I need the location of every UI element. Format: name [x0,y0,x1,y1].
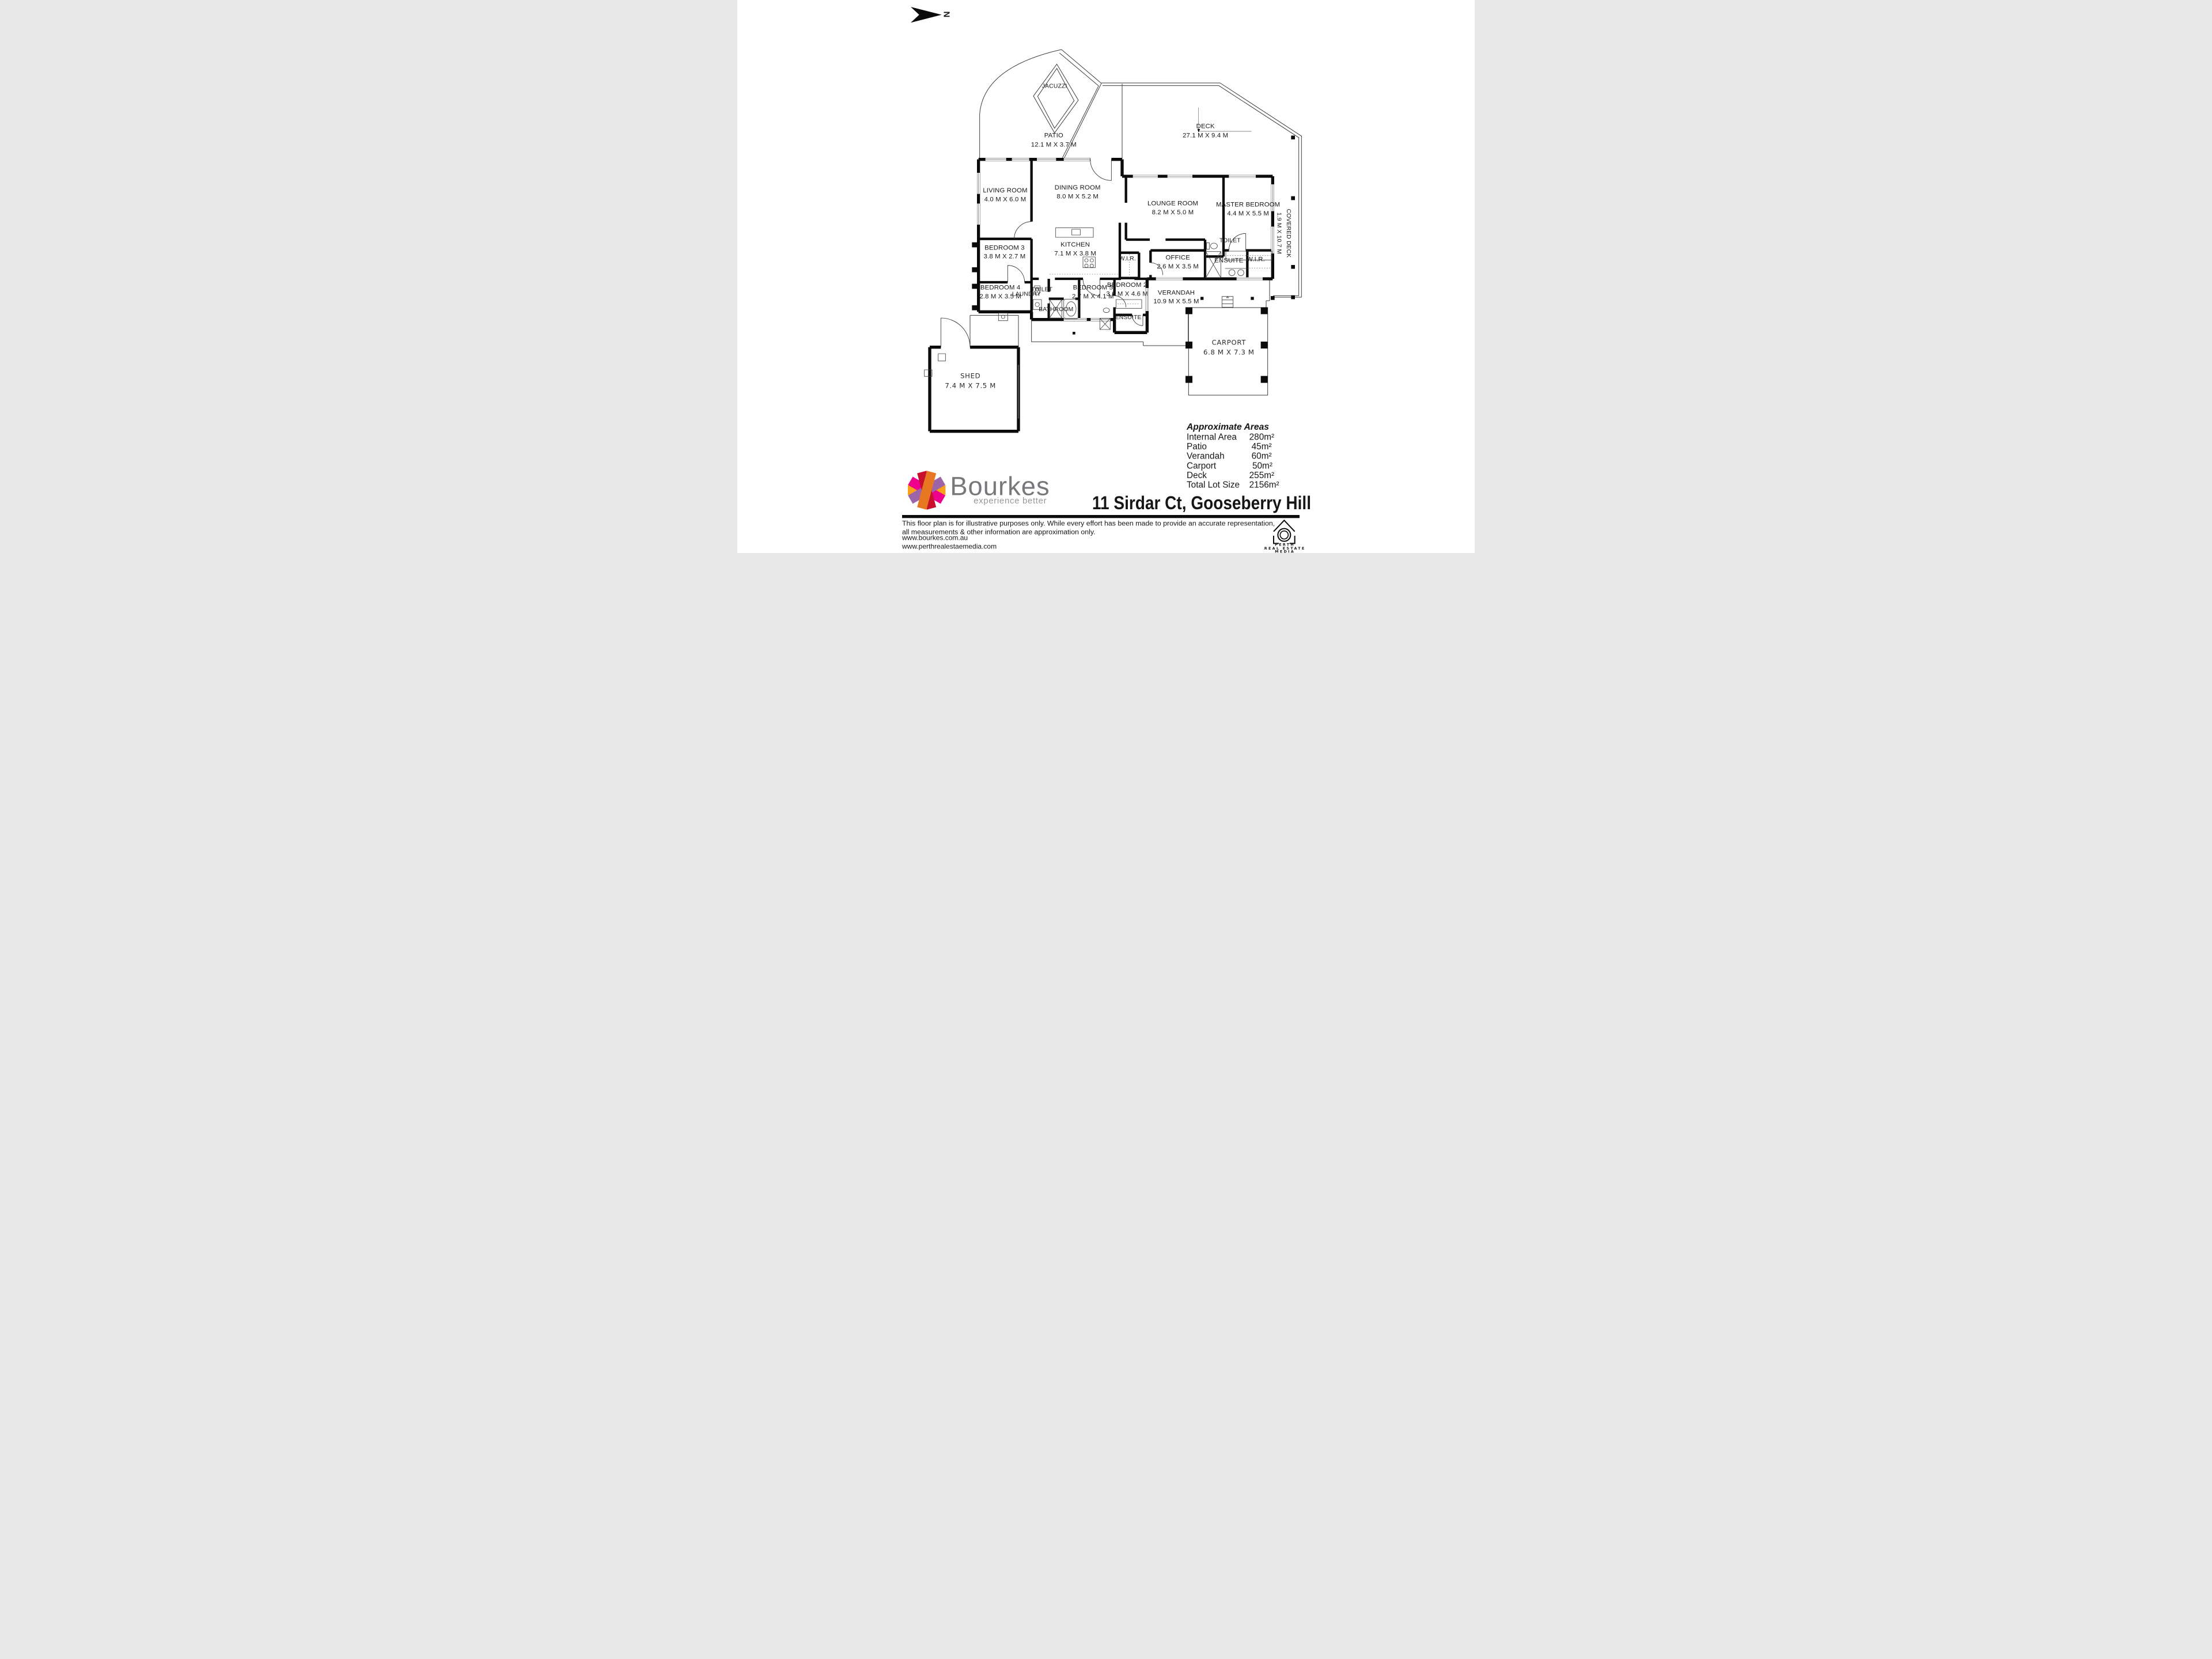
bourkes-star-icon [908,471,945,509]
brand-tagline: experience better [974,496,1047,506]
shed-annex-outline [970,315,1018,347]
property-address: 11 Sirdar Ct, Gooseberry Hill [1092,493,1311,513]
room-label-toilet1: TOILET [1219,238,1241,244]
room-label-bedroom2: BEDROOM 2 [1107,282,1147,289]
room-label-toilet2: TOILET [1031,286,1052,293]
prem-text-line1: PERTH [1275,543,1295,547]
room-dims-kitchen: 7.1 M X 3.8 M [1054,250,1096,257]
room-label-bedroom4: BEDROOM 4 [980,285,1020,291]
room-label-bathroom: BATHROOM [1039,306,1073,313]
cooktop-burner [1085,259,1088,262]
room-dims-living: 4.0 M X 6.0 M [984,196,1027,203]
room-dims-lounge: 8.2 M X 5.0 M [1152,209,1194,216]
room-label-wir2: W.I.R. [1247,256,1265,263]
room-label-wir1: W.I.R. [1119,256,1136,262]
bed4-niche-bowl [1001,315,1005,319]
room-label-office: OFFICE [1165,255,1190,262]
room-dims-shed: 7.4 M X 7.5 M [945,381,996,389]
areas-row-label: Deck [1187,471,1207,480]
areas-row-value: 255m² [1249,471,1274,480]
basin [1229,270,1235,276]
areas-row-value: 45m² [1252,442,1272,452]
room-label-covered-deck: COVERED DECK [1285,209,1291,258]
room-label-master: MASTER BEDROOM [1216,202,1280,209]
room-label-ensuite-master: ENSUITE [1214,257,1244,264]
basin [1238,270,1244,276]
link-bourkes[interactable]: www.bourkes.com.au [902,533,968,541]
room-dims-deck: 27.1 M X 9.4 M [1183,132,1228,139]
footer-rule [902,515,1300,518]
areas-row-label: Verandah [1187,452,1225,461]
room-dims-patio: 12.1 M X 3.7 M [1031,141,1077,148]
north-arrow: N [911,7,950,22]
room-dims-covered-deck: 1.9 M X 10.7 M [1275,213,1282,254]
room-dims-bedroom3: 3.8 M X 2.7 M [984,253,1026,260]
bourkes-logo: Bourkes experience better [908,471,1050,509]
room-label-shed: SHED [960,372,980,380]
areas-row-value: 60m² [1252,452,1272,461]
cooktop-burner [1090,264,1093,267]
room-dims-office: 2.6 M X 3.5 M [1157,263,1199,270]
areas-table: Approximate Areas Internal Area 280m² Pa… [1186,422,1279,490]
room-dims-verandah: 10.9 M X 5.5 M [1153,298,1199,305]
room-dims-bedroom2: 3.6 M X 4.6 M [1106,290,1148,297]
areas-row-label: Patio [1187,442,1207,452]
ensuite2-toilet [1103,308,1109,313]
cooktop-burner [1085,264,1088,267]
areas-row-value: 2156m² [1249,480,1279,490]
north-label: N [941,12,950,18]
room-dims-dining: 8.0 M X 5.2 M [1056,193,1099,200]
floorplan-page: N JACUZZI [737,0,1475,553]
toilet1-bowl [1210,243,1217,249]
areas-row-value: 50m² [1252,461,1272,471]
room-label-verandah: VERANDAH [1158,289,1195,296]
north-arrow-icon [911,7,942,22]
laundry-trough-bowl [1035,302,1039,306]
toilet1-fixture [1207,243,1210,249]
room-label-lounge: LOUNGE ROOM [1147,200,1198,207]
areas-row-label: Total Lot Size [1187,480,1240,490]
areas-row-label: Carport [1187,461,1217,471]
room-dims-master: 4.4 M X 5.5 M [1227,210,1269,217]
room-label-living: LIVING ROOM [983,187,1027,194]
room-label-bedroom3: BEDROOM 3 [984,244,1024,251]
room-label-jacuzzi: JACUZZI [1042,84,1067,90]
areas-title: Approximate Areas [1186,422,1269,432]
cooktop-burner [1090,259,1093,262]
prem-lens-inner-icon [1280,531,1288,539]
prem-house-icon [1274,520,1295,543]
areas-row-value: 280m² [1249,432,1274,442]
room-label-carport: CARPORT [1212,339,1247,347]
areas-row-label: Internal Area [1187,432,1237,442]
bbq [1222,296,1233,307]
room-label-kitchen: KITCHEN [1060,241,1090,248]
link-perthrealestatemedia[interactable]: www.perthrealestaemedia.com [902,543,997,551]
prem-text-line3: MEDIA [1275,550,1295,553]
floorplan-canvas: N JACUZZI [737,0,1475,553]
shed-window-boxes [925,354,946,376]
room-dims-carport: 6.8 M X 7.3 M [1203,348,1255,356]
room-label-patio: PATIO [1044,132,1063,139]
jacuzzi-outline [1033,64,1078,132]
room-label-deck: DECK [1196,123,1215,130]
room-label-ensuite2: ENSUITE [1115,315,1142,321]
bed4-niche-basin [998,313,1007,320]
kitchen-island [1056,228,1093,237]
room-label-dining: DINING ROOM [1055,184,1101,191]
disclaimer-line1: This floor plan is for illustrative purp… [902,520,1275,528]
